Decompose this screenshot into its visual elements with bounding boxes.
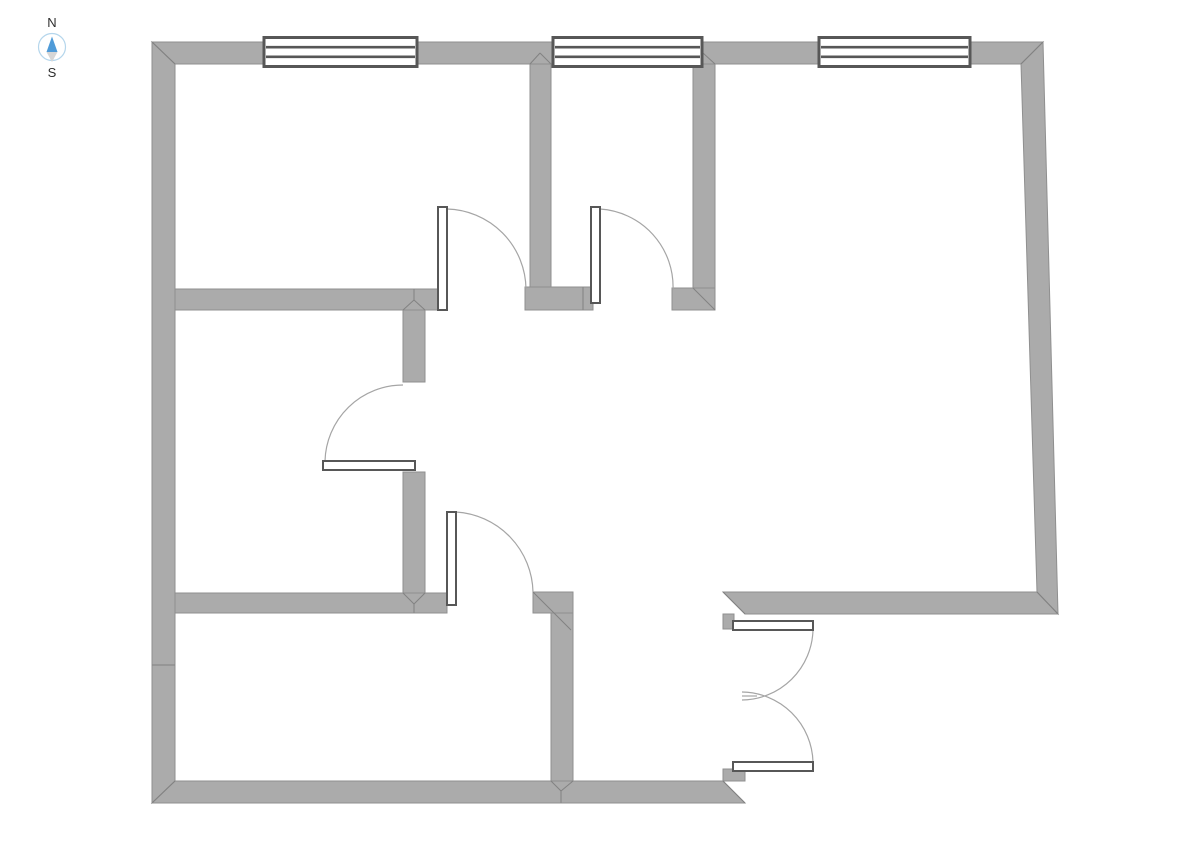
wall-seams-layer — [152, 42, 1058, 803]
door-5 — [733, 621, 813, 700]
door-5-leaf — [733, 621, 813, 630]
door-2-leaf — [591, 207, 600, 303]
interior-wall-h-upper — [175, 289, 442, 310]
outer-wall-right — [1021, 42, 1058, 614]
door-4-swing-arc — [456, 512, 533, 592]
outer-wall-bottom — [152, 781, 745, 803]
door-2-swing-arc — [600, 209, 673, 290]
window-1 — [264, 38, 417, 67]
window-1-frame — [264, 38, 417, 67]
door-6 — [733, 692, 813, 771]
door-2 — [591, 207, 673, 303]
door-1-leaf — [438, 207, 447, 310]
walls-layer — [152, 42, 1058, 803]
compass-rose: N S — [39, 15, 66, 80]
interior-wall-corner-stub — [533, 592, 573, 613]
door-3-leaf — [323, 461, 415, 470]
door-3-swing-arc — [325, 385, 403, 461]
windows-layer — [264, 38, 970, 67]
compass-north-label: N — [47, 15, 56, 30]
door-1-swing-arc — [447, 209, 526, 289]
door-1 — [438, 207, 526, 310]
compass-north-needle-icon — [47, 37, 58, 53]
interior-wall-v-mid-upper — [403, 310, 425, 382]
door-4-leaf — [447, 512, 456, 605]
window-3 — [819, 38, 970, 67]
window-3-frame — [819, 38, 970, 67]
interior-wall-v-bottom — [551, 613, 573, 781]
right-room-bottom-wall — [723, 592, 1058, 614]
window-2 — [553, 38, 702, 67]
window-2-frame — [553, 38, 702, 67]
interior-wall-v-mid-lower — [403, 472, 425, 593]
floorplan-canvas: N S — [0, 0, 1191, 842]
interior-wall-end-cap — [672, 288, 715, 310]
door-3 — [323, 385, 415, 470]
compass-south-label: S — [48, 65, 57, 80]
interior-wall-v-window-right — [693, 64, 715, 288]
door-4 — [447, 512, 533, 605]
door-6-leaf — [733, 762, 813, 771]
interior-wall-v-top — [530, 64, 551, 287]
door-6-swing-arc — [742, 692, 813, 762]
outer-wall-left — [152, 42, 175, 803]
floorplan-page: N S — [0, 0, 1191, 842]
door-5-swing-arc — [742, 630, 813, 700]
